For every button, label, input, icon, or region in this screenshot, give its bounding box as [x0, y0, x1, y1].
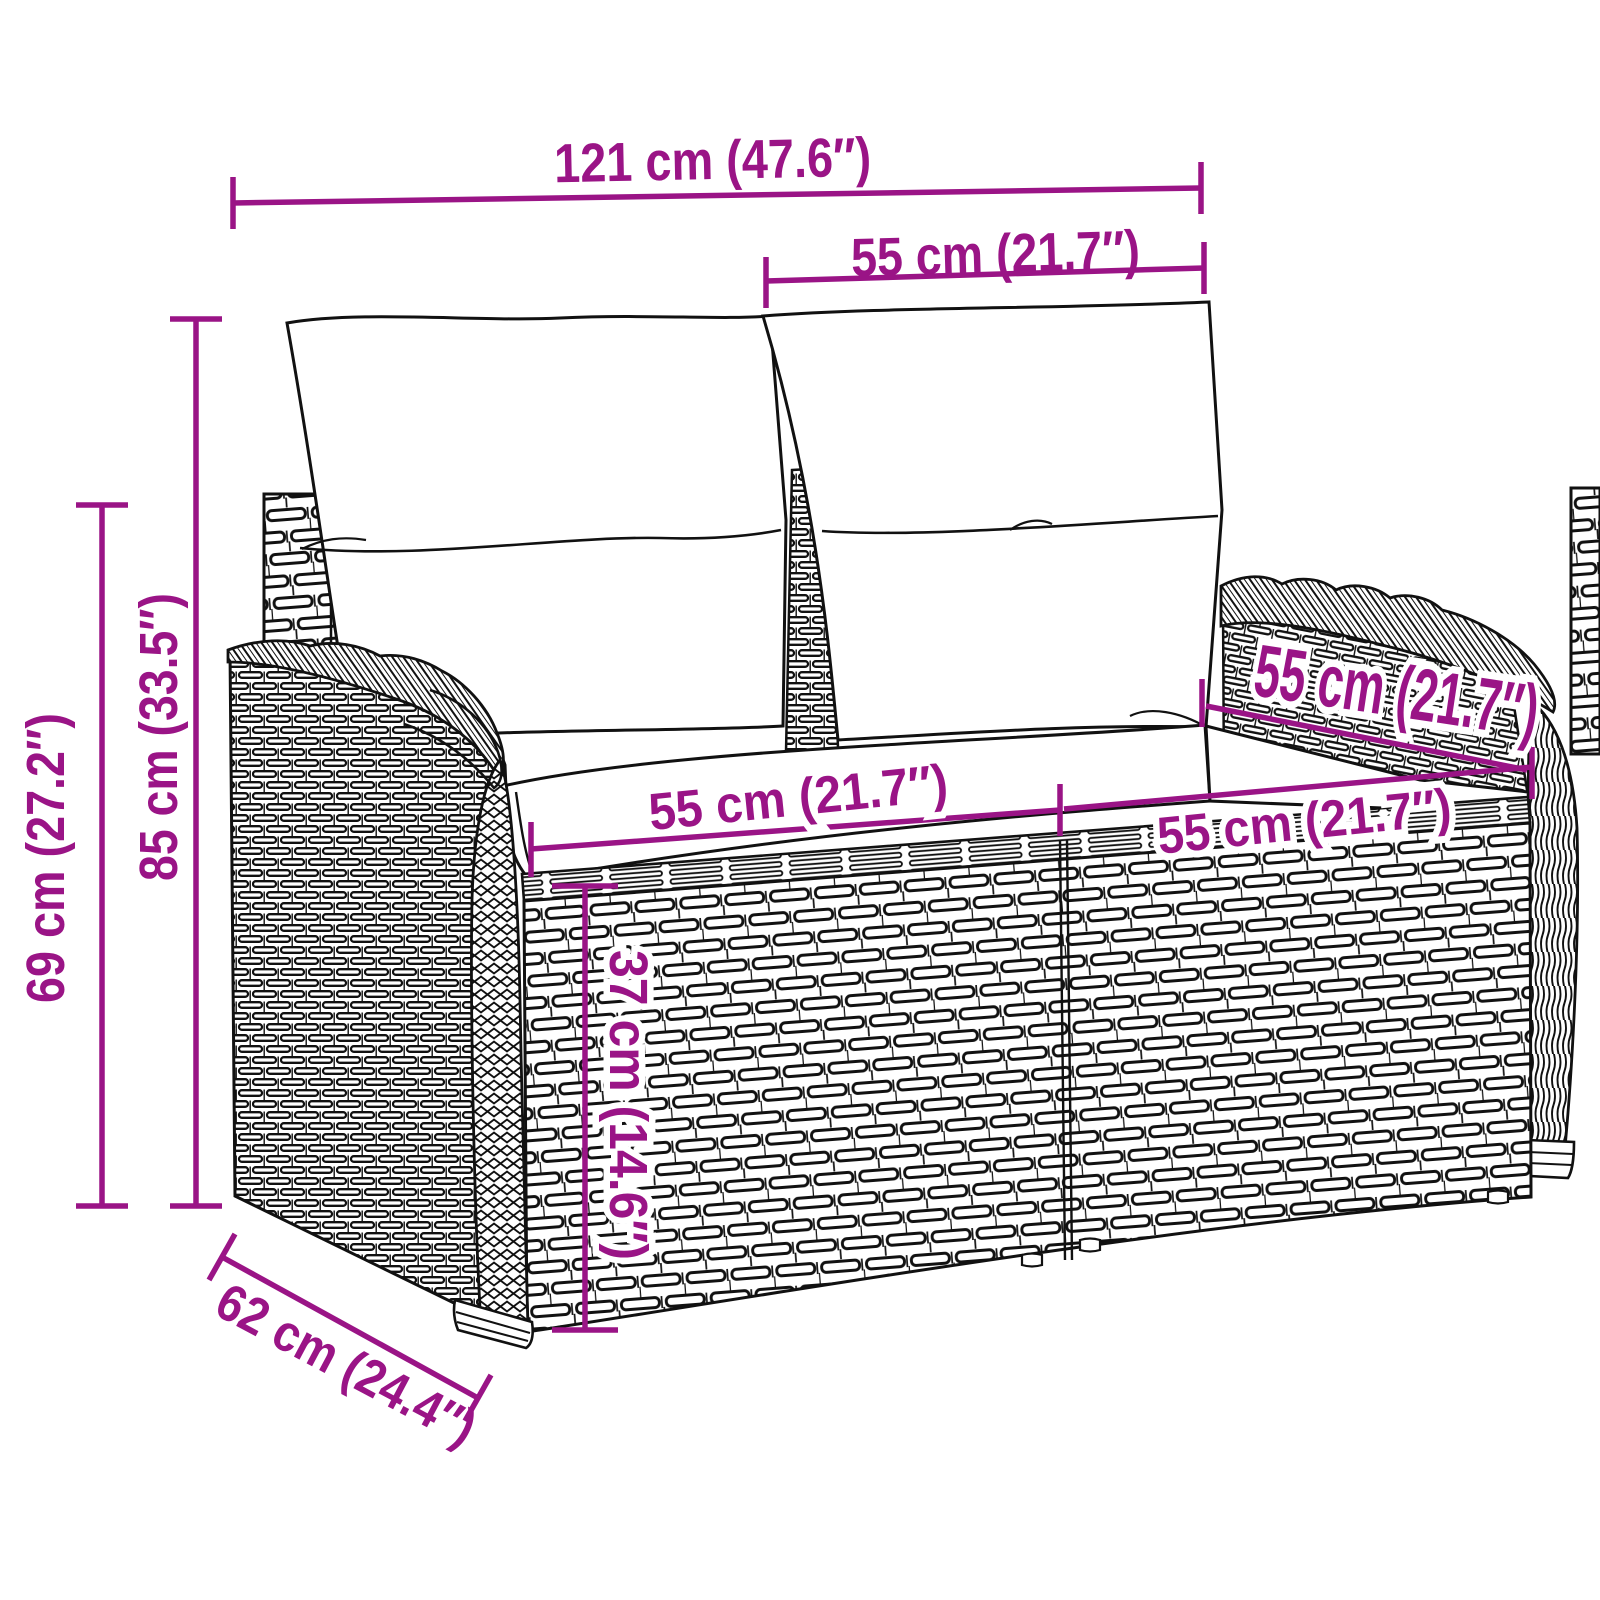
svg-text:85 cm (33.5″): 85 cm (33.5″)	[129, 593, 189, 881]
svg-text:121 cm (47.6″): 121 cm (47.6″)	[553, 126, 871, 195]
svg-text:55 cm (21.7″): 55 cm (21.7″)	[850, 220, 1141, 289]
svg-text:69 cm (27.2″): 69 cm (27.2″)	[16, 713, 76, 1003]
svg-text:37 cm (14.6″): 37 cm (14.6″)	[598, 950, 658, 1260]
